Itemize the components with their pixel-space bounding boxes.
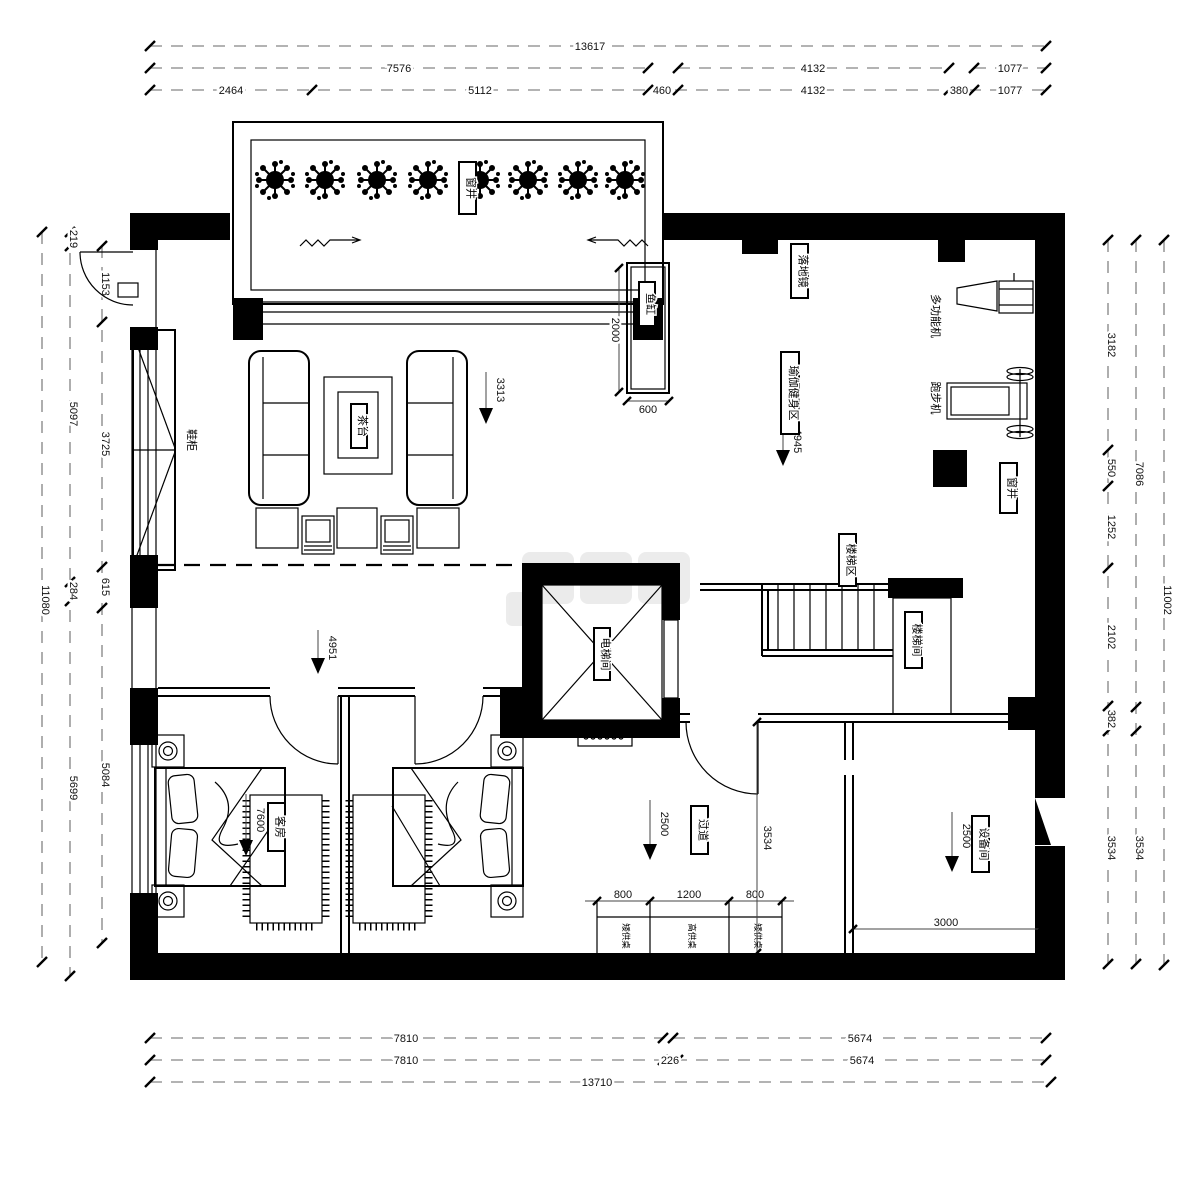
room-labels: 窗井 鞋柜 茶台 鱼缸 落地镜 瑜伽健身区 多功能机 跑步机 窗井 楼梯区 电梯… xyxy=(185,162,1020,872)
bedroom-left-door[interactable] xyxy=(270,696,338,764)
small-chair-2 xyxy=(381,516,413,554)
dim-left-i0: 1153 xyxy=(99,272,111,296)
bedroom-left xyxy=(152,735,326,927)
equipment-room-door[interactable] xyxy=(1035,798,1065,846)
elevation-living: 3313 xyxy=(479,372,506,424)
dim-top-total: 13617 xyxy=(575,41,606,53)
elevation-corridor: 2500 xyxy=(643,800,670,860)
dim-right-i1: 550 xyxy=(1105,459,1117,477)
label-window-well-top: 窗井 xyxy=(465,177,479,199)
label-elevator-room: 电梯间 xyxy=(599,638,612,671)
dim-equip-w: 3000 xyxy=(934,917,958,929)
floor-plan-page: 13617 7576 4132 1077 2464 5112 460 4132 … xyxy=(0,0,1200,1194)
interior-dimensions: 3534 3000 xyxy=(753,718,1044,957)
svg-text:4951: 4951 xyxy=(326,636,338,660)
stools xyxy=(256,508,459,554)
sofa-left xyxy=(249,351,309,505)
dim-top-r3-1: 5112 xyxy=(468,85,492,97)
dim-left-i1: 3725 xyxy=(99,432,111,456)
dim-top-r3-3: 4132 xyxy=(801,85,825,97)
label-corridor: 过道 xyxy=(697,819,711,841)
dimensions-left: 11080 219 5097 284 5699 1153 3725 615 50… xyxy=(37,227,111,981)
label-fish-tank: 鱼缸 xyxy=(644,293,658,315)
dimensions-bottom: 7810 5674 7810 226 5674 13710 xyxy=(145,1033,1056,1089)
dim-bot-r1-1: 5674 xyxy=(848,1033,872,1045)
dim-desk-0: 800 xyxy=(614,889,632,901)
dim-left-m1: 5097 xyxy=(67,402,79,426)
dim-corridor-h: 3534 xyxy=(761,826,773,850)
label-stair-room: 楼梯间 xyxy=(911,624,925,657)
label-low-altar-left: 矮供桌 xyxy=(621,923,631,949)
svg-text:2500: 2500 xyxy=(658,812,670,836)
dim-left-m2: 284 xyxy=(67,582,79,600)
label-yoga-area: 瑜伽健身区 xyxy=(787,366,801,421)
dim-bot-r1-0: 7810 xyxy=(394,1033,418,1045)
small-chair-1 xyxy=(302,516,334,554)
dim-left-total: 11080 xyxy=(39,585,51,615)
elevation-hall: 4951 xyxy=(311,630,338,674)
dimensions-top: 13617 7576 4132 1077 2464 5112 460 4132 … xyxy=(145,41,1051,97)
svg-text:3313: 3313 xyxy=(494,378,506,402)
dim-bot-r2-1: 226 xyxy=(661,1055,679,1067)
dim-bot-r2-0: 7810 xyxy=(394,1055,418,1067)
dim-left-i3: 5084 xyxy=(99,763,111,787)
dim-right-i2: 1252 xyxy=(1105,515,1117,539)
dim-bot-total: 13710 xyxy=(582,1077,613,1089)
dim-right-total: 11002 xyxy=(1161,585,1173,615)
label-tea-table: 茶台 xyxy=(356,415,370,437)
dim-top-r2-2: 1077 xyxy=(998,63,1022,75)
dim-top-r2-1: 4132 xyxy=(801,63,825,75)
dim-top-r3-4: 380 xyxy=(950,85,968,97)
dim-left-m3: 5699 xyxy=(67,776,79,800)
dim-top-r3-0: 2464 xyxy=(219,85,243,97)
label-low-altar-right: 矮供桌 xyxy=(753,923,763,949)
dim-top-r3-2: 460 xyxy=(653,85,671,97)
dim-left-m0: 219 xyxy=(67,230,79,248)
bedroom-right-door[interactable] xyxy=(415,696,483,764)
dim-right-i0: 3182 xyxy=(1105,333,1117,357)
bedroom-right xyxy=(349,735,523,927)
label-window-well-right: 窗井 xyxy=(1006,477,1020,499)
label-shoe-cabinet: 鞋柜 xyxy=(185,429,199,451)
dim-right-m1: 3534 xyxy=(1133,836,1145,860)
label-high-altar: 高供桌 xyxy=(687,923,697,949)
multi-function-machine xyxy=(957,273,1033,313)
elevator-door xyxy=(664,620,678,698)
doors xyxy=(80,252,1065,846)
dim-fish-width: 600 xyxy=(639,404,657,416)
dim-right-i4: 382 xyxy=(1105,710,1117,728)
label-floor-mirror: 落地镜 xyxy=(797,255,811,288)
floor-plan-drawing: 13617 7576 4132 1077 2464 5112 460 4132 … xyxy=(0,0,1200,1194)
svg-text:2500: 2500 xyxy=(960,824,972,848)
dim-right-m0: 7086 xyxy=(1133,462,1145,486)
label-stair-area: 楼梯区 xyxy=(845,544,859,577)
sofa-right xyxy=(407,351,467,505)
elevation-equipment: 2500 xyxy=(945,812,972,872)
dim-fish-height: 2000 xyxy=(609,318,621,342)
dim-left-i2: 615 xyxy=(99,578,111,596)
dim-desk-2: 800 xyxy=(746,889,764,901)
label-equipment-room: 设备间 xyxy=(978,828,992,861)
label-treadmill: 跑步机 xyxy=(929,382,943,415)
dim-desk-1: 1200 xyxy=(677,889,701,901)
elevation-guest: 7600 xyxy=(239,794,266,856)
corridor-door[interactable] xyxy=(686,722,758,794)
rug-right xyxy=(349,795,429,927)
dim-right-i3: 2102 xyxy=(1105,625,1117,649)
dimensions-right: 3182 550 1252 2102 382 3534 7086 3534 11… xyxy=(1103,235,1173,970)
shoe-cabinet xyxy=(133,330,175,570)
altar-tables: 800 1200 800 矮供桌 高供桌 矮供桌 xyxy=(585,889,794,953)
treadmill xyxy=(947,368,1033,439)
svg-text:7600: 7600 xyxy=(254,808,266,832)
planter-bay xyxy=(233,122,663,340)
label-guest-room: 客房 xyxy=(274,816,288,838)
dim-top-r3-5: 1077 xyxy=(998,85,1022,97)
dim-top-r2-0: 7576 xyxy=(387,63,411,75)
label-multi-function-machine: 多功能机 xyxy=(929,294,943,338)
bed-right xyxy=(392,768,523,886)
break-marks xyxy=(300,237,648,246)
dim-right-i5: 3534 xyxy=(1105,836,1117,860)
dim-bot-r2-2: 5674 xyxy=(850,1055,874,1067)
